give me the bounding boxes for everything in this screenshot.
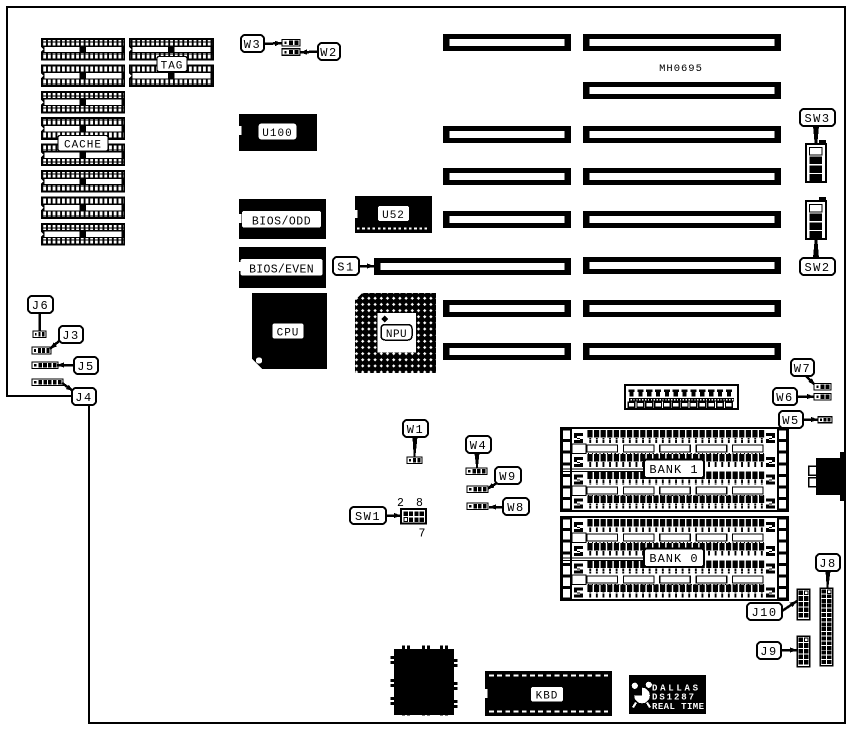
svg-text:SW3: SW3: [804, 112, 830, 126]
svg-text:U52: U52: [382, 210, 405, 222]
svg-text:CPU: CPU: [277, 328, 300, 340]
svg-text:SW1: SW1: [355, 510, 381, 524]
svg-text:W9: W9: [499, 470, 516, 484]
svg-text:8: 8: [416, 497, 423, 510]
svg-text:W1: W1: [407, 423, 424, 437]
svg-text:W2: W2: [320, 46, 337, 60]
svg-text:J8: J8: [819, 557, 836, 571]
svg-text:KBD: KBD: [536, 691, 559, 703]
svg-text:7: 7: [419, 528, 426, 541]
svg-text:BIOS/EVEN: BIOS/EVEN: [249, 263, 314, 276]
svg-text:W3: W3: [244, 38, 261, 52]
svg-text:W5: W5: [782, 414, 799, 428]
svg-text:BIOS/ODD: BIOS/ODD: [252, 215, 311, 228]
svg-text:J5: J5: [77, 360, 94, 374]
svg-text:BANK 1: BANK 1: [649, 463, 698, 477]
svg-text:J4: J4: [75, 391, 92, 405]
svg-text:W4: W4: [470, 439, 487, 453]
svg-text:2: 2: [397, 497, 404, 510]
svg-text:U100: U100: [262, 128, 292, 140]
svg-text:W8: W8: [507, 501, 524, 515]
svg-text:W7: W7: [794, 362, 811, 376]
svg-text:BANK 0: BANK 0: [649, 552, 698, 566]
svg-text:J10: J10: [751, 606, 777, 620]
svg-text:NPU: NPU: [386, 329, 407, 341]
svg-text:W6: W6: [776, 391, 793, 405]
svg-text:SW2: SW2: [804, 261, 830, 275]
svg-text:TAG: TAG: [161, 60, 184, 72]
svg-text:J9: J9: [760, 645, 777, 659]
svg-text:REAL TIME: REAL TIME: [652, 702, 705, 712]
svg-text:J3: J3: [62, 329, 79, 343]
svg-text:J6: J6: [32, 299, 49, 313]
svg-text:S1: S1: [337, 260, 354, 274]
svg-text:MH0695: MH0695: [659, 63, 703, 75]
svg-text:CACHE: CACHE: [64, 140, 102, 152]
